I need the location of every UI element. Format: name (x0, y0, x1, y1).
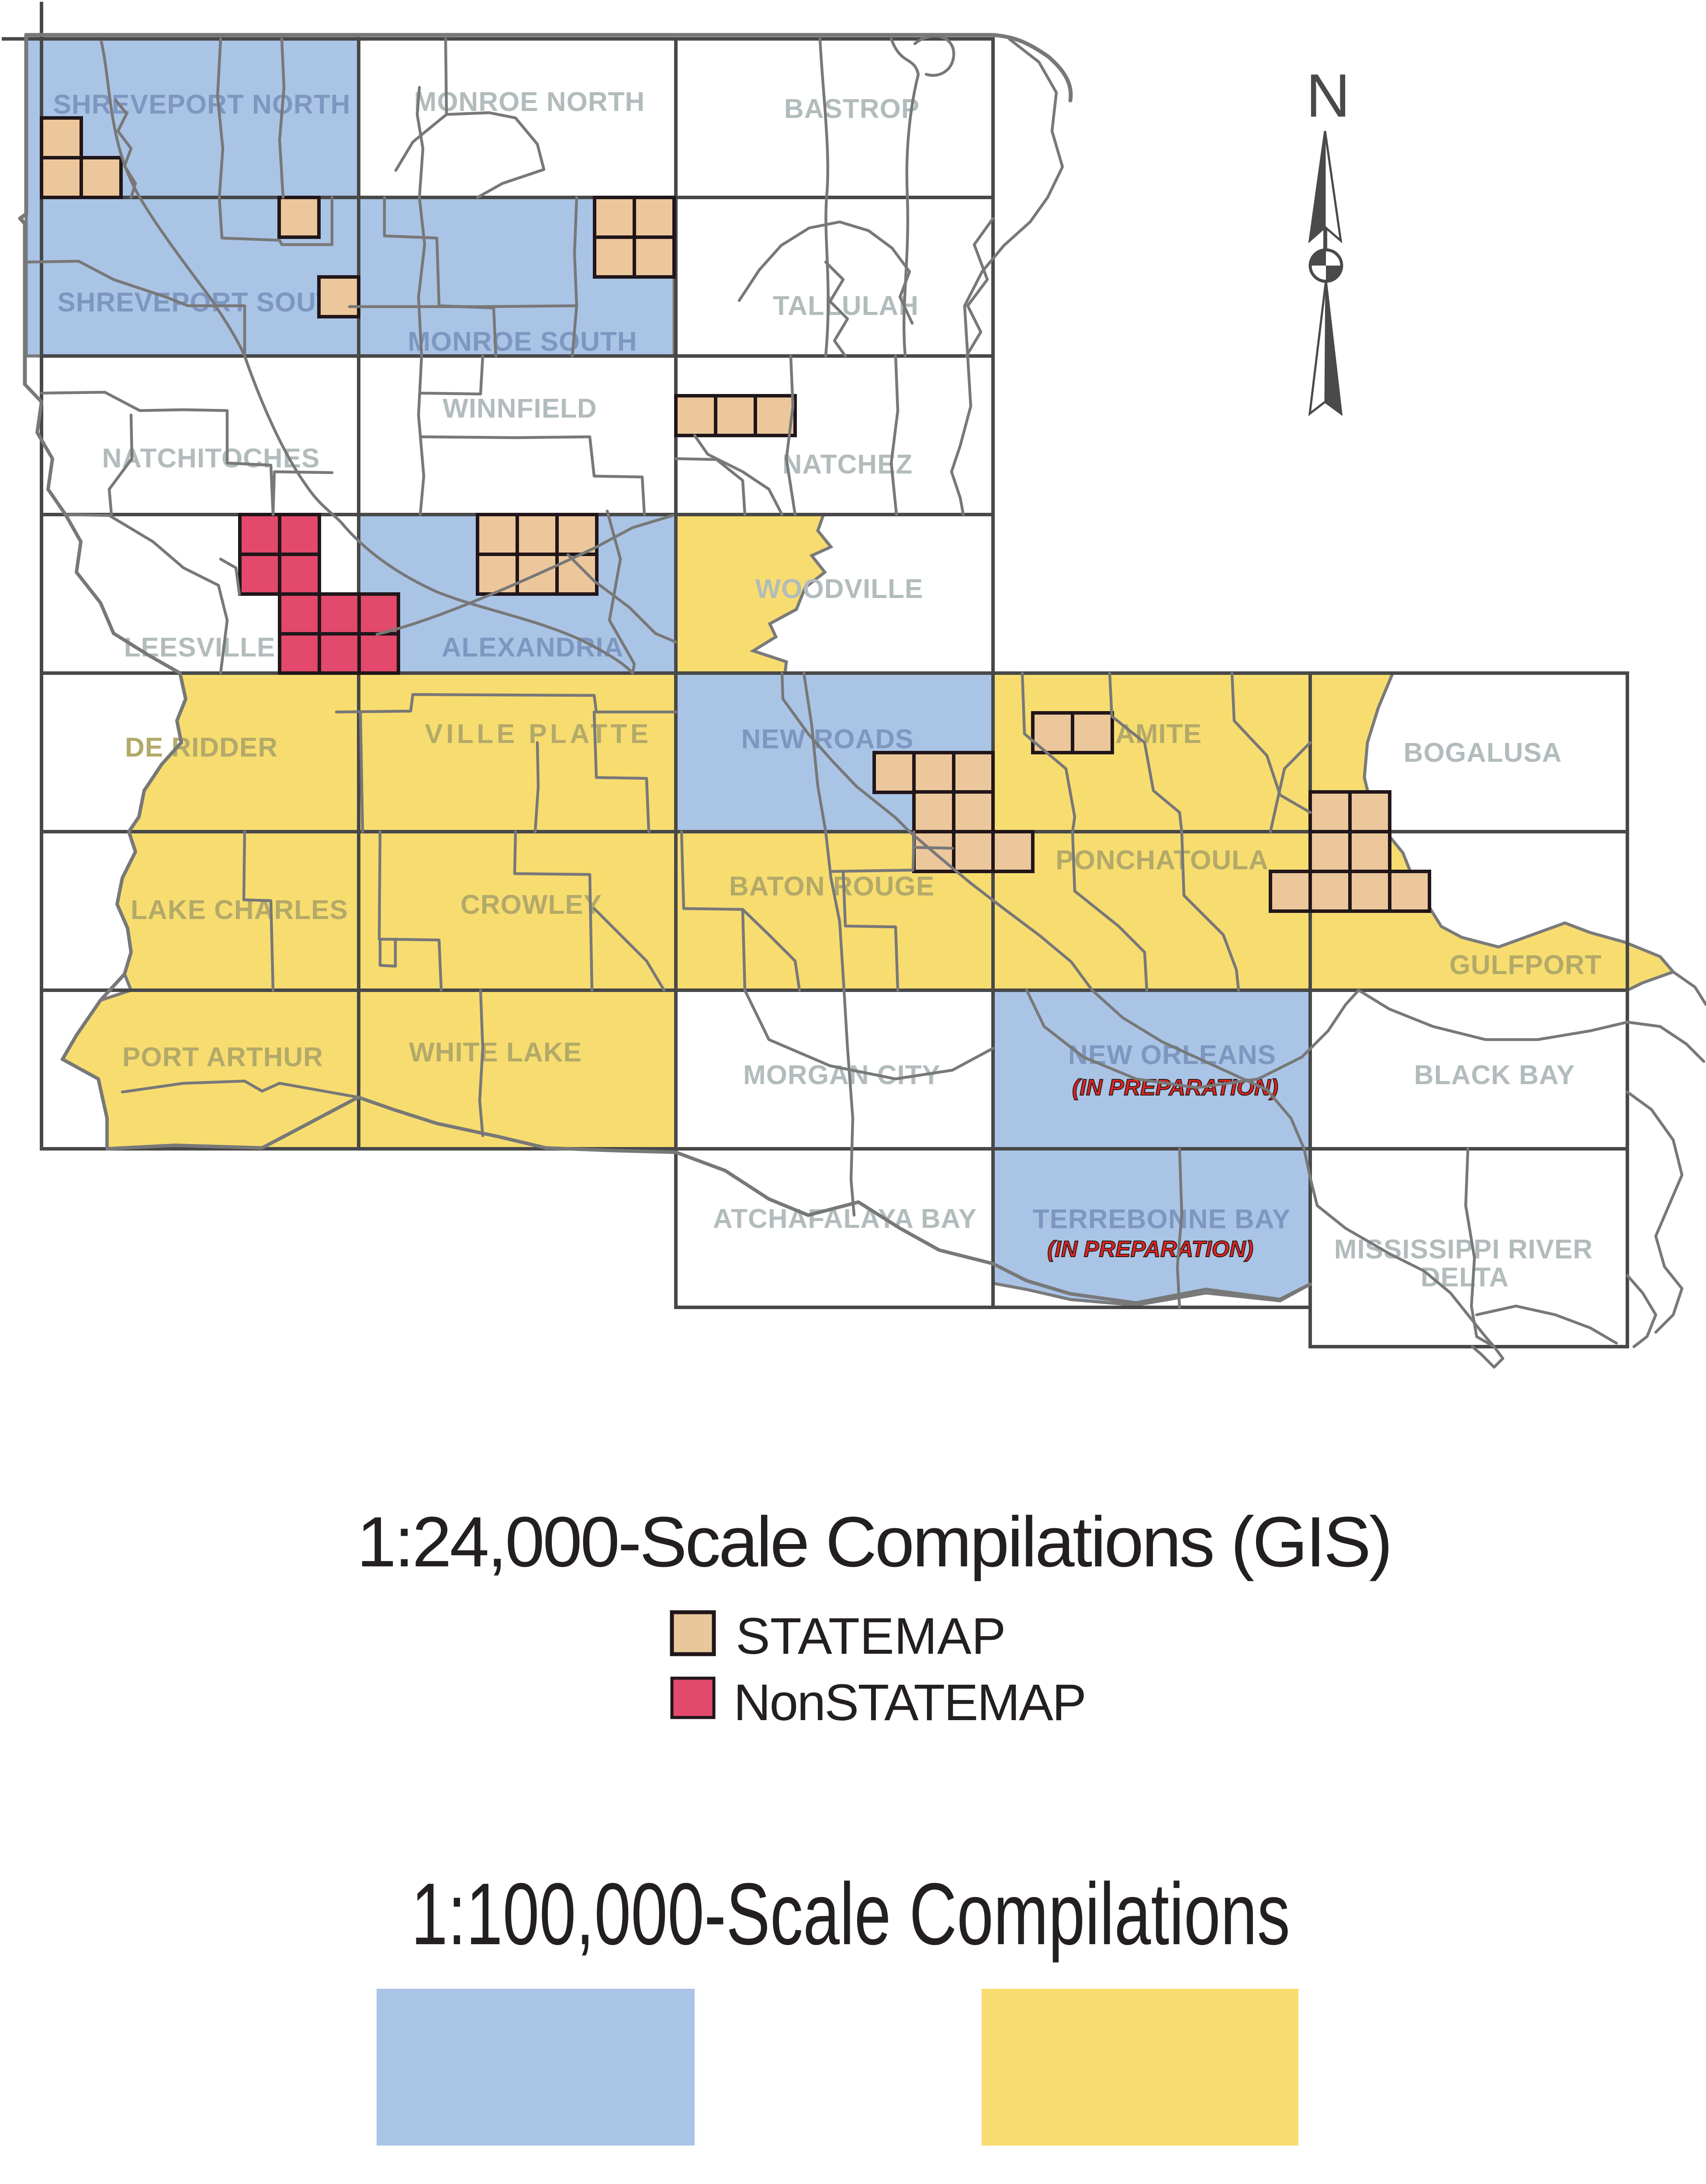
svg-text:PORT ARTHUR: PORT ARTHUR (122, 1042, 323, 1072)
svg-text:BASTROP: BASTROP (784, 94, 920, 124)
svg-text:STATEMAP: STATEMAP (736, 1607, 1006, 1665)
svg-text:BOGALUSA: BOGALUSA (1404, 738, 1562, 768)
svg-text:NATCHITOCHES: NATCHITOCHES (102, 443, 320, 473)
svg-text:WHITE LAKE: WHITE LAKE (409, 1037, 582, 1068)
svg-text:MONROE NORTH: MONROE NORTH (414, 87, 645, 117)
svg-text:1:24,000-Scale Compilations (G: 1:24,000-Scale Compilations (GIS) (357, 1502, 1391, 1582)
svg-text:LAKE CHARLES: LAKE CHARLES (131, 895, 348, 925)
svg-text:MONROE SOUTH: MONROE SOUTH (408, 327, 637, 357)
svg-text:SHREVEPORT NORTH: SHREVEPORT NORTH (53, 90, 351, 120)
svg-text:1:100,000-Scale Compilations: 1:100,000-Scale Compilations (411, 1865, 1290, 1963)
svg-text:WINNFIELD: WINNFIELD (443, 394, 597, 424)
svg-text:DE RIDDER: DE RIDDER (125, 733, 278, 763)
svg-text:(IN PREPARATION): (IN PREPARATION) (1072, 1075, 1278, 1100)
svg-text:PONCHATOULA: PONCHATOULA (1055, 845, 1268, 875)
svg-text:NonSTATEMAP: NonSTATEMAP (734, 1674, 1085, 1731)
svg-text:(IN PREPARATION): (IN PREPARATION) (1047, 1237, 1253, 1262)
svg-text:CROWLEY: CROWLEY (460, 890, 602, 920)
svg-text:ATCHAFALAYA BAY: ATCHAFALAYA BAY (713, 1204, 977, 1234)
svg-text:NEW ROADS: NEW ROADS (741, 724, 914, 754)
svg-text:WOODVILLE: WOODVILLE (755, 574, 923, 604)
svg-text:NEW ORLEANS: NEW ORLEANS (1068, 1040, 1276, 1070)
svg-text:TERREBONNE BAY: TERREBONNE BAY (1033, 1204, 1291, 1234)
svg-text:GULFPORT: GULFPORT (1450, 950, 1602, 980)
svg-text:LEESVILLE: LEESVILLE (124, 632, 276, 663)
svg-text:N: N (1306, 61, 1350, 130)
svg-text:BLACK BAY: BLACK BAY (1414, 1060, 1575, 1090)
svg-text:MISSISSIPPI RIVER: MISSISSIPPI RIVER (1334, 1234, 1593, 1265)
svg-text:AMITE: AMITE (1115, 719, 1202, 749)
